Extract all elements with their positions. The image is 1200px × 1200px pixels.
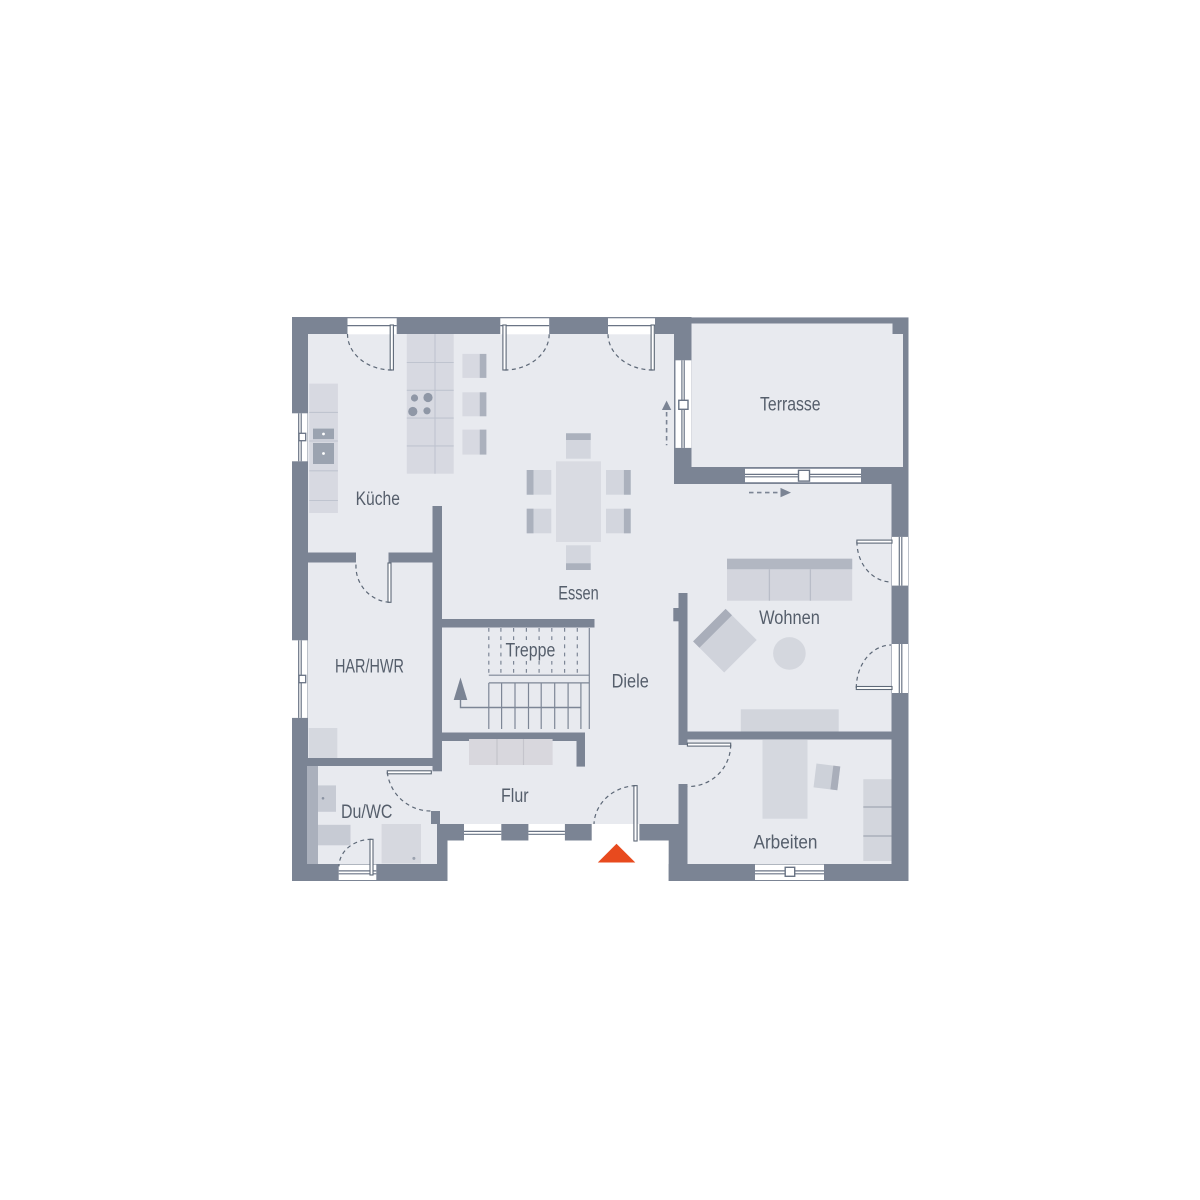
svg-text:Du/WC: Du/WC <box>341 801 392 823</box>
svg-text:Treppe: Treppe <box>506 640 556 662</box>
svg-text:HAR/HWR: HAR/HWR <box>335 656 404 678</box>
svg-text:Arbeiten: Arbeiten <box>754 832 818 854</box>
svg-text:Küche: Küche <box>356 488 400 510</box>
svg-text:Wohnen: Wohnen <box>759 607 820 629</box>
svg-text:Terrasse: Terrasse <box>760 393 821 415</box>
svg-text:Flur: Flur <box>501 785 529 807</box>
svg-text:Diele: Diele <box>612 671 649 693</box>
svg-text:Essen: Essen <box>558 582 599 604</box>
